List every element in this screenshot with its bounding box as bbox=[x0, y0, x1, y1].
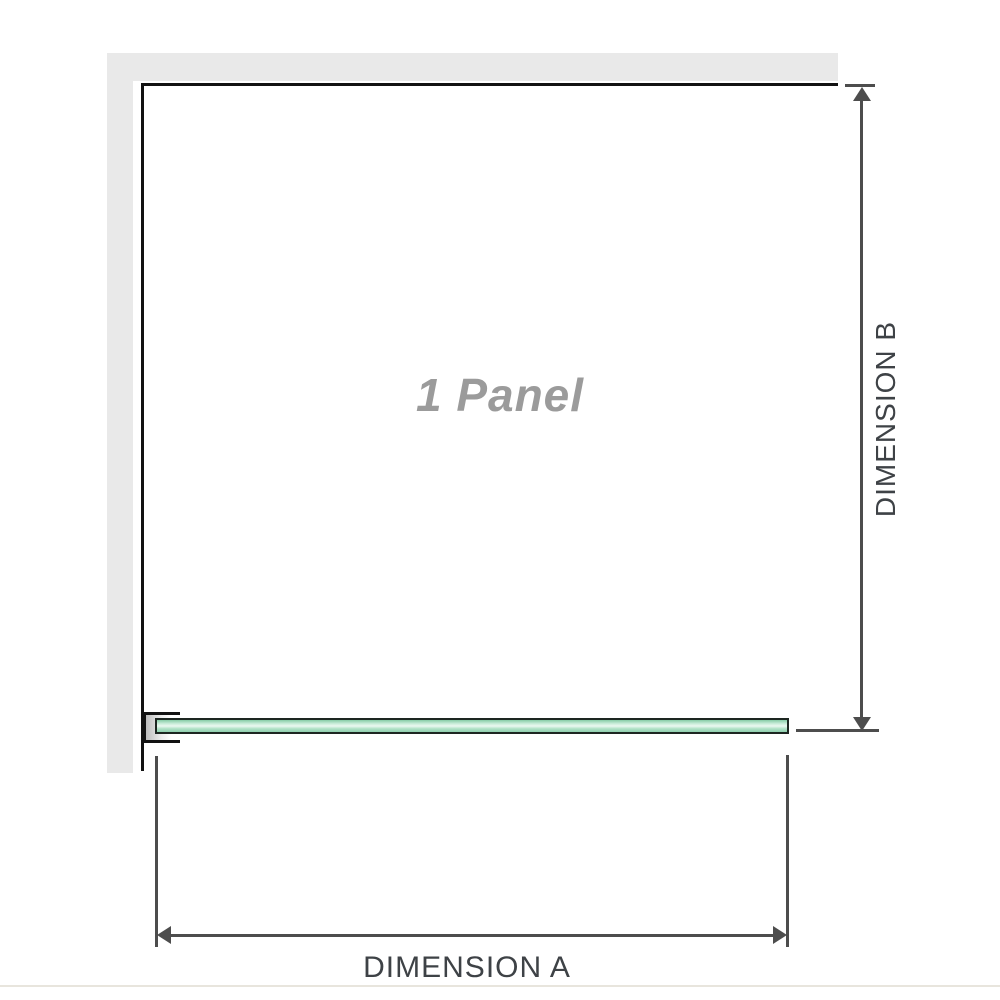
dimension-b-line bbox=[860, 97, 863, 720]
arrow-right-icon bbox=[773, 926, 787, 944]
arrow-down-icon bbox=[853, 717, 871, 731]
arrow-left-icon bbox=[157, 926, 171, 944]
bottom-divider bbox=[0, 985, 1000, 987]
wall-top-segment bbox=[107, 53, 838, 81]
dimension-a-left-extension-line bbox=[155, 756, 158, 947]
shower-panel-outline bbox=[141, 83, 838, 771]
glass-panel-bar bbox=[155, 718, 789, 734]
dimension-b-label: DIMENSION B bbox=[868, 297, 904, 541]
wall-left-segment bbox=[107, 53, 133, 773]
dimension-a-right-extension-line bbox=[786, 755, 789, 947]
arrow-up-icon bbox=[853, 87, 871, 101]
dimension-a-line bbox=[163, 934, 781, 937]
dimension-a-label: DIMENSION A bbox=[317, 948, 617, 988]
shower-screen-dimension-diagram: 1 Panel DIMENSION B DIMENSION A bbox=[0, 0, 1000, 1000]
panel-label: 1 Panel bbox=[350, 371, 650, 419]
